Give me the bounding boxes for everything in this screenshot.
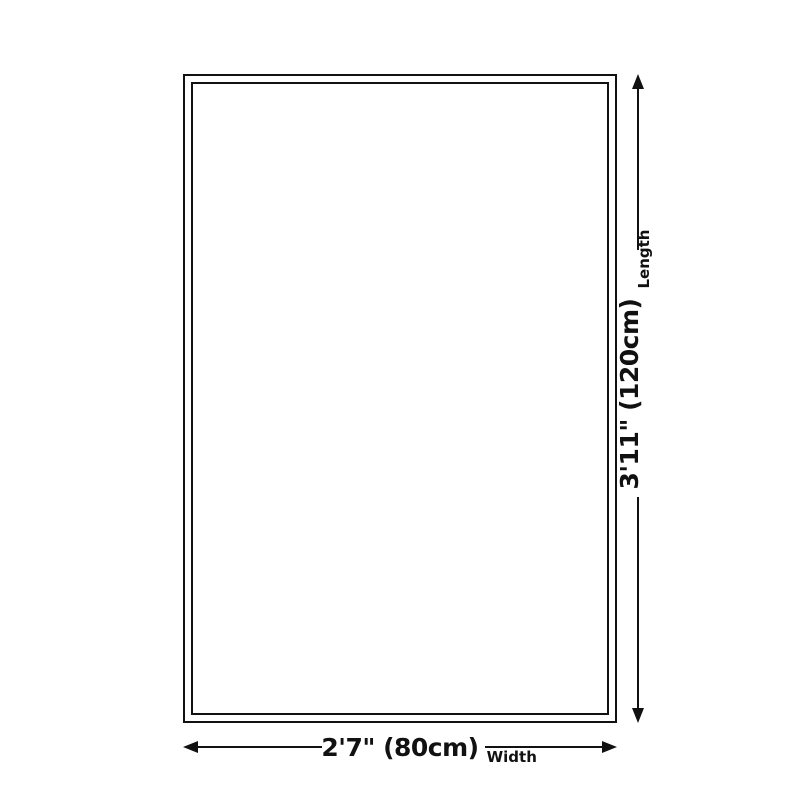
size-diagram-canvas: 3'11" (120cm) Length 2'7" (80cm) Width xyxy=(0,0,800,800)
rug-outline xyxy=(183,74,617,723)
length-dimension-text: 3'11" (120cm) Length xyxy=(616,298,644,489)
length-dimension: 3'11" (120cm) Length xyxy=(624,74,652,723)
arrow-down-icon xyxy=(632,708,644,723)
arrow-right-icon xyxy=(602,741,617,753)
rug-inner-outline xyxy=(191,82,609,715)
width-dimension-line-left xyxy=(195,746,322,748)
length-dimension-line-bottom xyxy=(637,497,639,711)
width-dimension-text: 2'7" (80cm) Width xyxy=(321,734,478,762)
length-value: 3'11" (120cm) xyxy=(616,298,644,489)
width-dimension: 2'7" (80cm) Width xyxy=(183,733,617,763)
width-value: 2'7" (80cm) xyxy=(321,734,478,762)
length-dimension-line-top xyxy=(637,86,639,250)
width-label: Width xyxy=(487,750,537,765)
length-label: Length xyxy=(637,229,652,288)
width-dimension-line-right xyxy=(485,746,605,748)
